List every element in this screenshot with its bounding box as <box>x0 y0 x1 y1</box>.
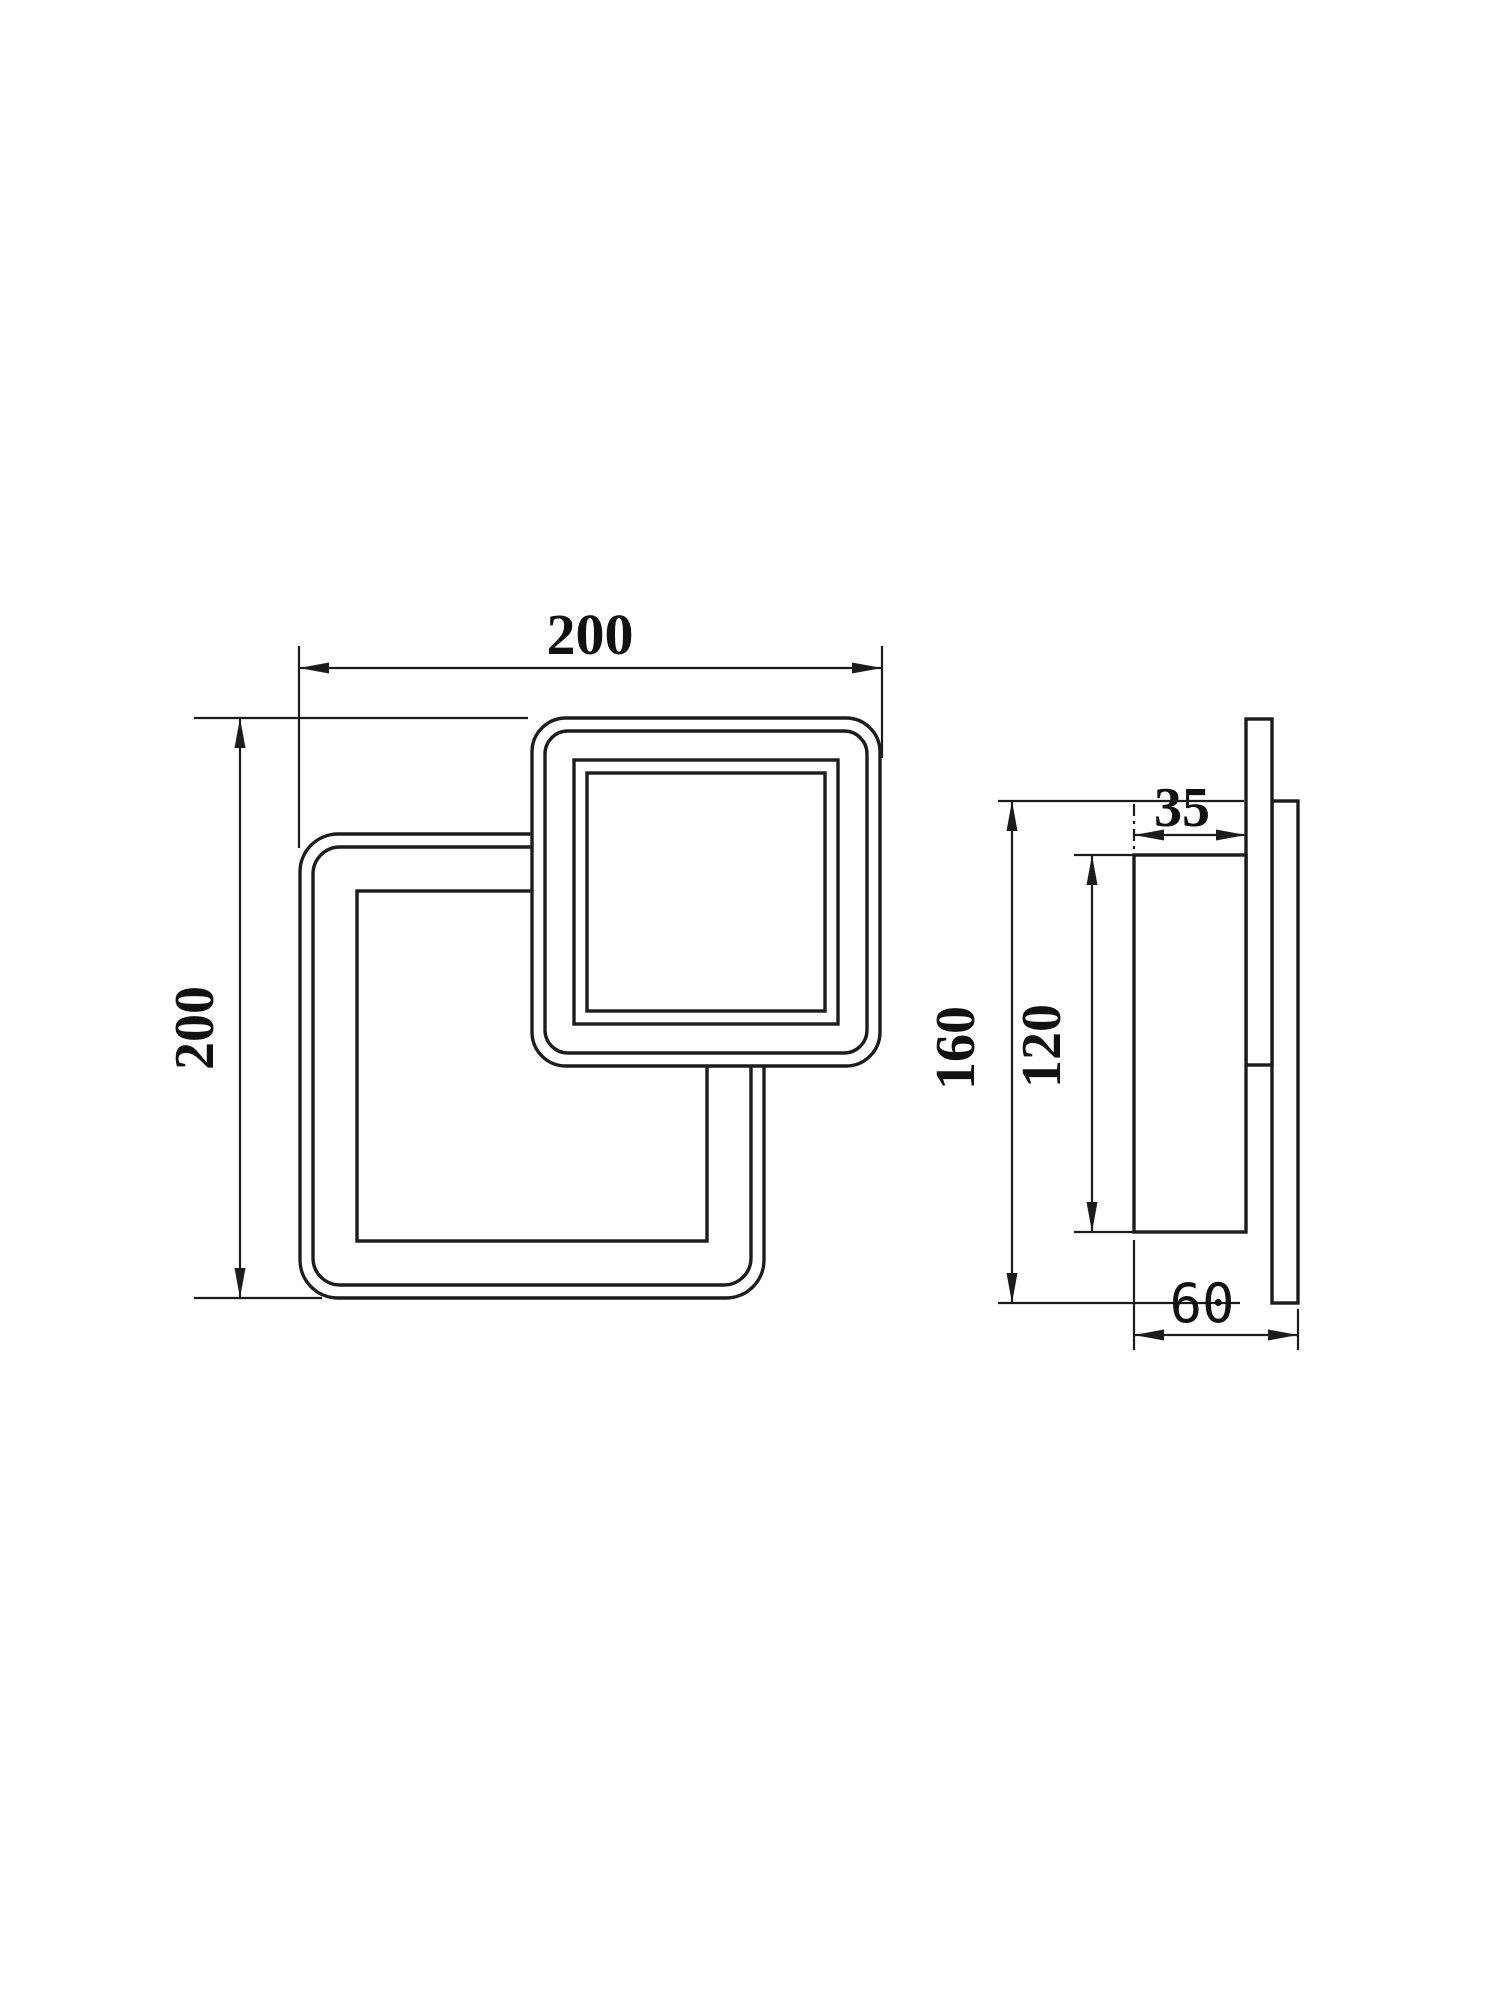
arrowhead-down-icon <box>1007 1273 1018 1303</box>
arrowhead-down-icon <box>1087 1202 1098 1232</box>
rear-height-label: 160 <box>925 1006 987 1090</box>
dimension-front-height-side: 120 <box>1011 855 1136 1232</box>
arrowhead-left-icon <box>299 663 329 674</box>
arrowhead-right-icon <box>852 663 882 674</box>
drawing-sheet: 200 200 <box>0 0 1500 2000</box>
front-height-label: 200 <box>164 986 226 1070</box>
side-view: 35 160 120 <box>925 719 1298 1350</box>
side-front-body <box>1134 855 1246 1232</box>
total-depth-label: 60 <box>1169 1272 1234 1335</box>
arrowhead-left-icon <box>1134 1330 1164 1341</box>
arrowhead-up-icon <box>235 718 246 748</box>
arrowhead-up-icon <box>1087 855 1098 885</box>
arrowhead-right-icon <box>1216 830 1246 841</box>
front-width-label: 200 <box>547 602 634 667</box>
front-height-side-label: 120 <box>1011 1004 1073 1088</box>
front-view: 200 200 <box>164 602 882 1298</box>
side-middle-plate <box>1246 719 1272 1065</box>
small-square-ring <box>532 718 880 1066</box>
front-depth-label: 35 <box>1154 777 1210 839</box>
arrowhead-down-icon <box>235 1268 246 1298</box>
small-square-outer-edge <box>532 718 880 1066</box>
dimension-front-height: 200 <box>164 718 528 1298</box>
side-wall-plate <box>1272 801 1298 1303</box>
technical-drawing-canvas: 200 200 <box>0 0 1500 2000</box>
arrowhead-right-icon <box>1268 1330 1298 1341</box>
arrowhead-up-icon <box>1007 801 1018 831</box>
